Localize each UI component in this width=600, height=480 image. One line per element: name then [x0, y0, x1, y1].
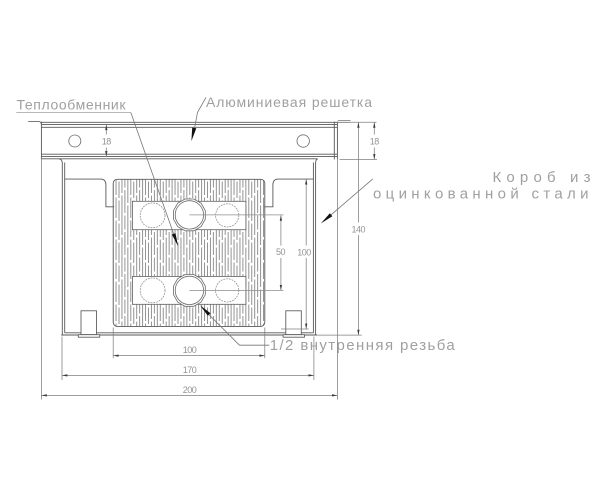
- svg-text:100: 100: [297, 247, 311, 257]
- svg-text:18: 18: [370, 136, 380, 146]
- svg-text:1/2 внутренняя резьба: 1/2 внутренняя резьба: [270, 337, 456, 354]
- svg-text:Теплообменник: Теплообменник: [17, 97, 127, 113]
- svg-text:100: 100: [183, 345, 197, 355]
- svg-text:170: 170: [183, 365, 197, 375]
- svg-text:Короб из: Короб из: [493, 169, 591, 186]
- svg-text:140: 140: [352, 225, 366, 235]
- svg-text:оцинкованной стали: оцинкованной стали: [373, 185, 589, 202]
- svg-text:Алюминиевая решетка: Алюминиевая решетка: [206, 94, 372, 110]
- svg-text:50: 50: [276, 247, 286, 257]
- svg-text:18: 18: [102, 136, 112, 146]
- svg-text:200: 200: [183, 385, 197, 395]
